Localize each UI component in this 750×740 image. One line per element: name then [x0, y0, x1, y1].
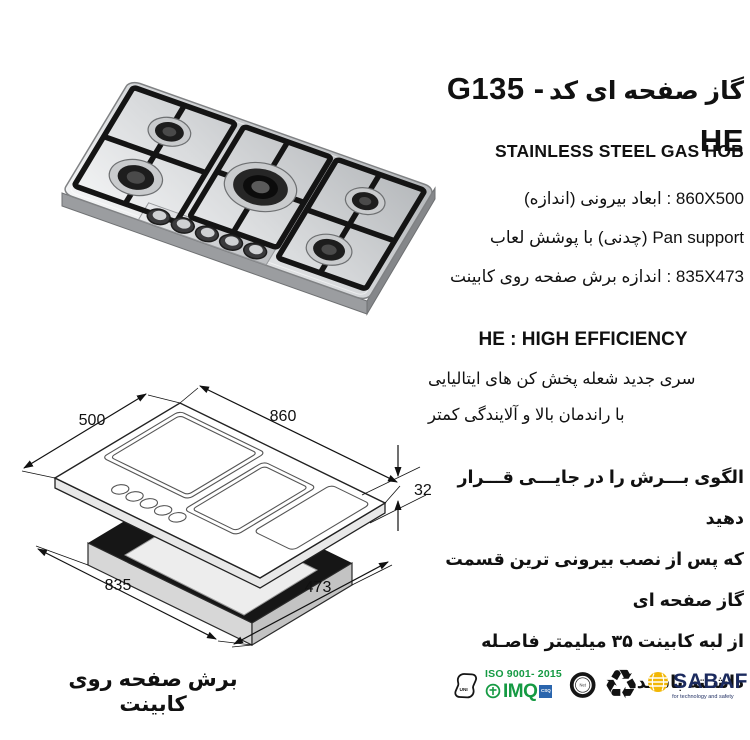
certification-ring-badge: Net [569, 663, 596, 707]
dim-label-473: 473 [305, 579, 332, 596]
dim-label-860: 860 [270, 408, 297, 425]
imq-logo: ISO 9001- 2015 IMQ CSQ [485, 669, 562, 701]
efficiency-line-1: سری جدید شعله پخش کن های ایتالیایی [428, 361, 744, 397]
iso-label: ISO 9001- 2015 [485, 669, 562, 680]
spec-outer-dimensions: 860X500 : ابعاد بیرونی (اندازه) [428, 183, 744, 222]
imq-circle-icon [485, 683, 501, 699]
uni-certification-icon: UNI [452, 662, 478, 708]
sabaf-logo: SABAF for technology and safety [646, 670, 748, 701]
sabaf-globe-icon [646, 670, 670, 694]
drawing-caption: برش صفحه روی کابینت [48, 667, 258, 717]
dim-label-835: 835 [105, 577, 132, 594]
spec-pan-support: Pan support (چدنی) با پوشش لعاب [428, 222, 744, 261]
dim-label-500: 500 [79, 412, 106, 429]
installation-diagram: 500 860 32 835 [20, 373, 440, 649]
spec-cut-dimensions: 835X473 : اندازه برش صفحه روی کابینت [428, 261, 744, 300]
recycle-icon: ♻ [603, 665, 639, 705]
product-subtitle: STAINLESS STEEL GAS HOB [428, 141, 744, 162]
ring-center-label: Net [579, 683, 586, 688]
uni-label: UNI [460, 687, 468, 693]
spec-list: 860X500 : ابعاد بیرونی (اندازه) Pan supp… [428, 183, 744, 300]
technical-drawing: 500 860 32 835 [20, 373, 440, 649]
sabaf-tagline: for technology and safety [672, 695, 748, 701]
title-persian: گاز صفحه ای کد [549, 77, 744, 105]
note-line-2: که پس از نصب بیرونی ترین قسمت گاز صفحه ا… [428, 539, 744, 621]
imq-label: IMQ [503, 682, 537, 701]
certification-logos: UNI ISO 9001- 2015 IMQ CSQ Net ♻ [452, 654, 748, 716]
csq-badge: CSQ [539, 685, 552, 698]
efficiency-block: HE : HIGH EFFICIENCY سری جدید شعله پخش ک… [428, 329, 744, 433]
note-line-1: الگوی بـــرش را در جایـــی قـــرار دهید [428, 457, 744, 539]
sabaf-label: SABAF [673, 671, 748, 692]
efficiency-title: HE : HIGH EFFICIENCY [428, 329, 738, 351]
datasheet-page: 500 860 32 835 [0, 0, 750, 740]
gas-hob-photo [25, 55, 455, 375]
efficiency-line-2: با راندمان بالا و آلایندگی کمتر [428, 397, 744, 433]
product-photo [25, 55, 455, 375]
